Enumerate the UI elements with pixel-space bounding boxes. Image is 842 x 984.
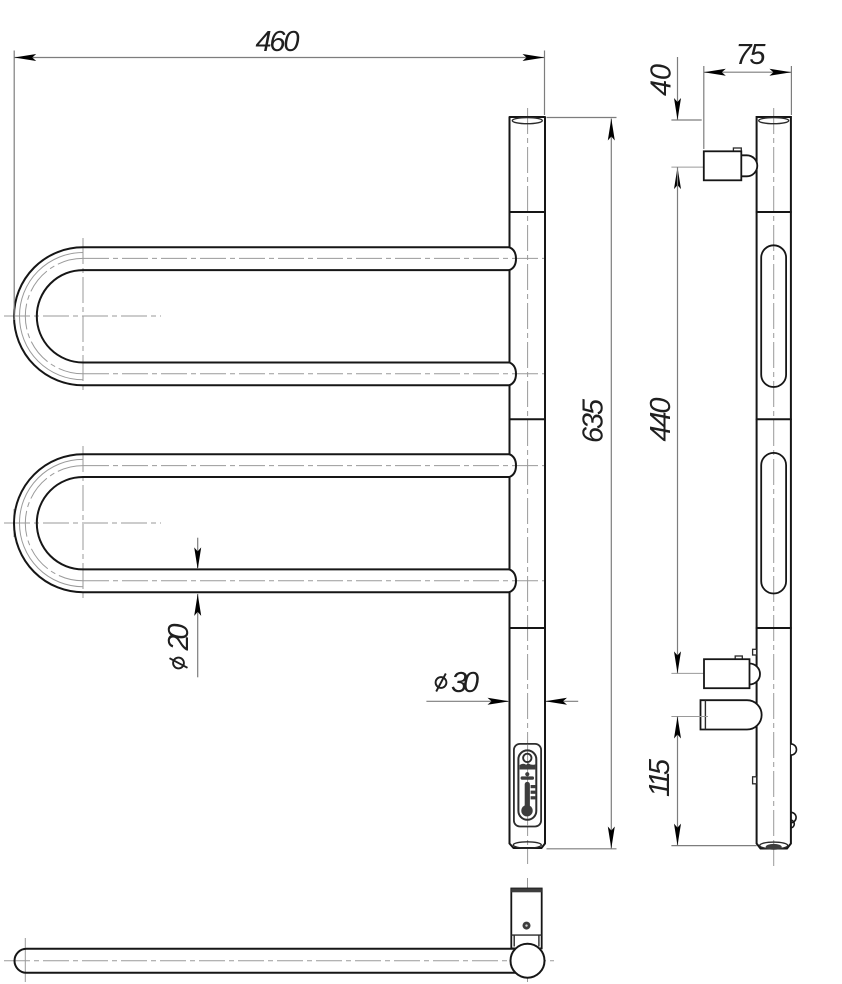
svg-text:440: 440 [645, 398, 677, 442]
svg-text:75: 75 [736, 39, 767, 71]
svg-text:635: 635 [578, 398, 610, 443]
svg-text:40: 40 [646, 64, 678, 96]
svg-text:115: 115 [644, 758, 676, 797]
svg-text:30: 30 [451, 667, 479, 699]
svg-text:460: 460 [256, 26, 300, 58]
svg-text:20: 20 [163, 624, 195, 652]
